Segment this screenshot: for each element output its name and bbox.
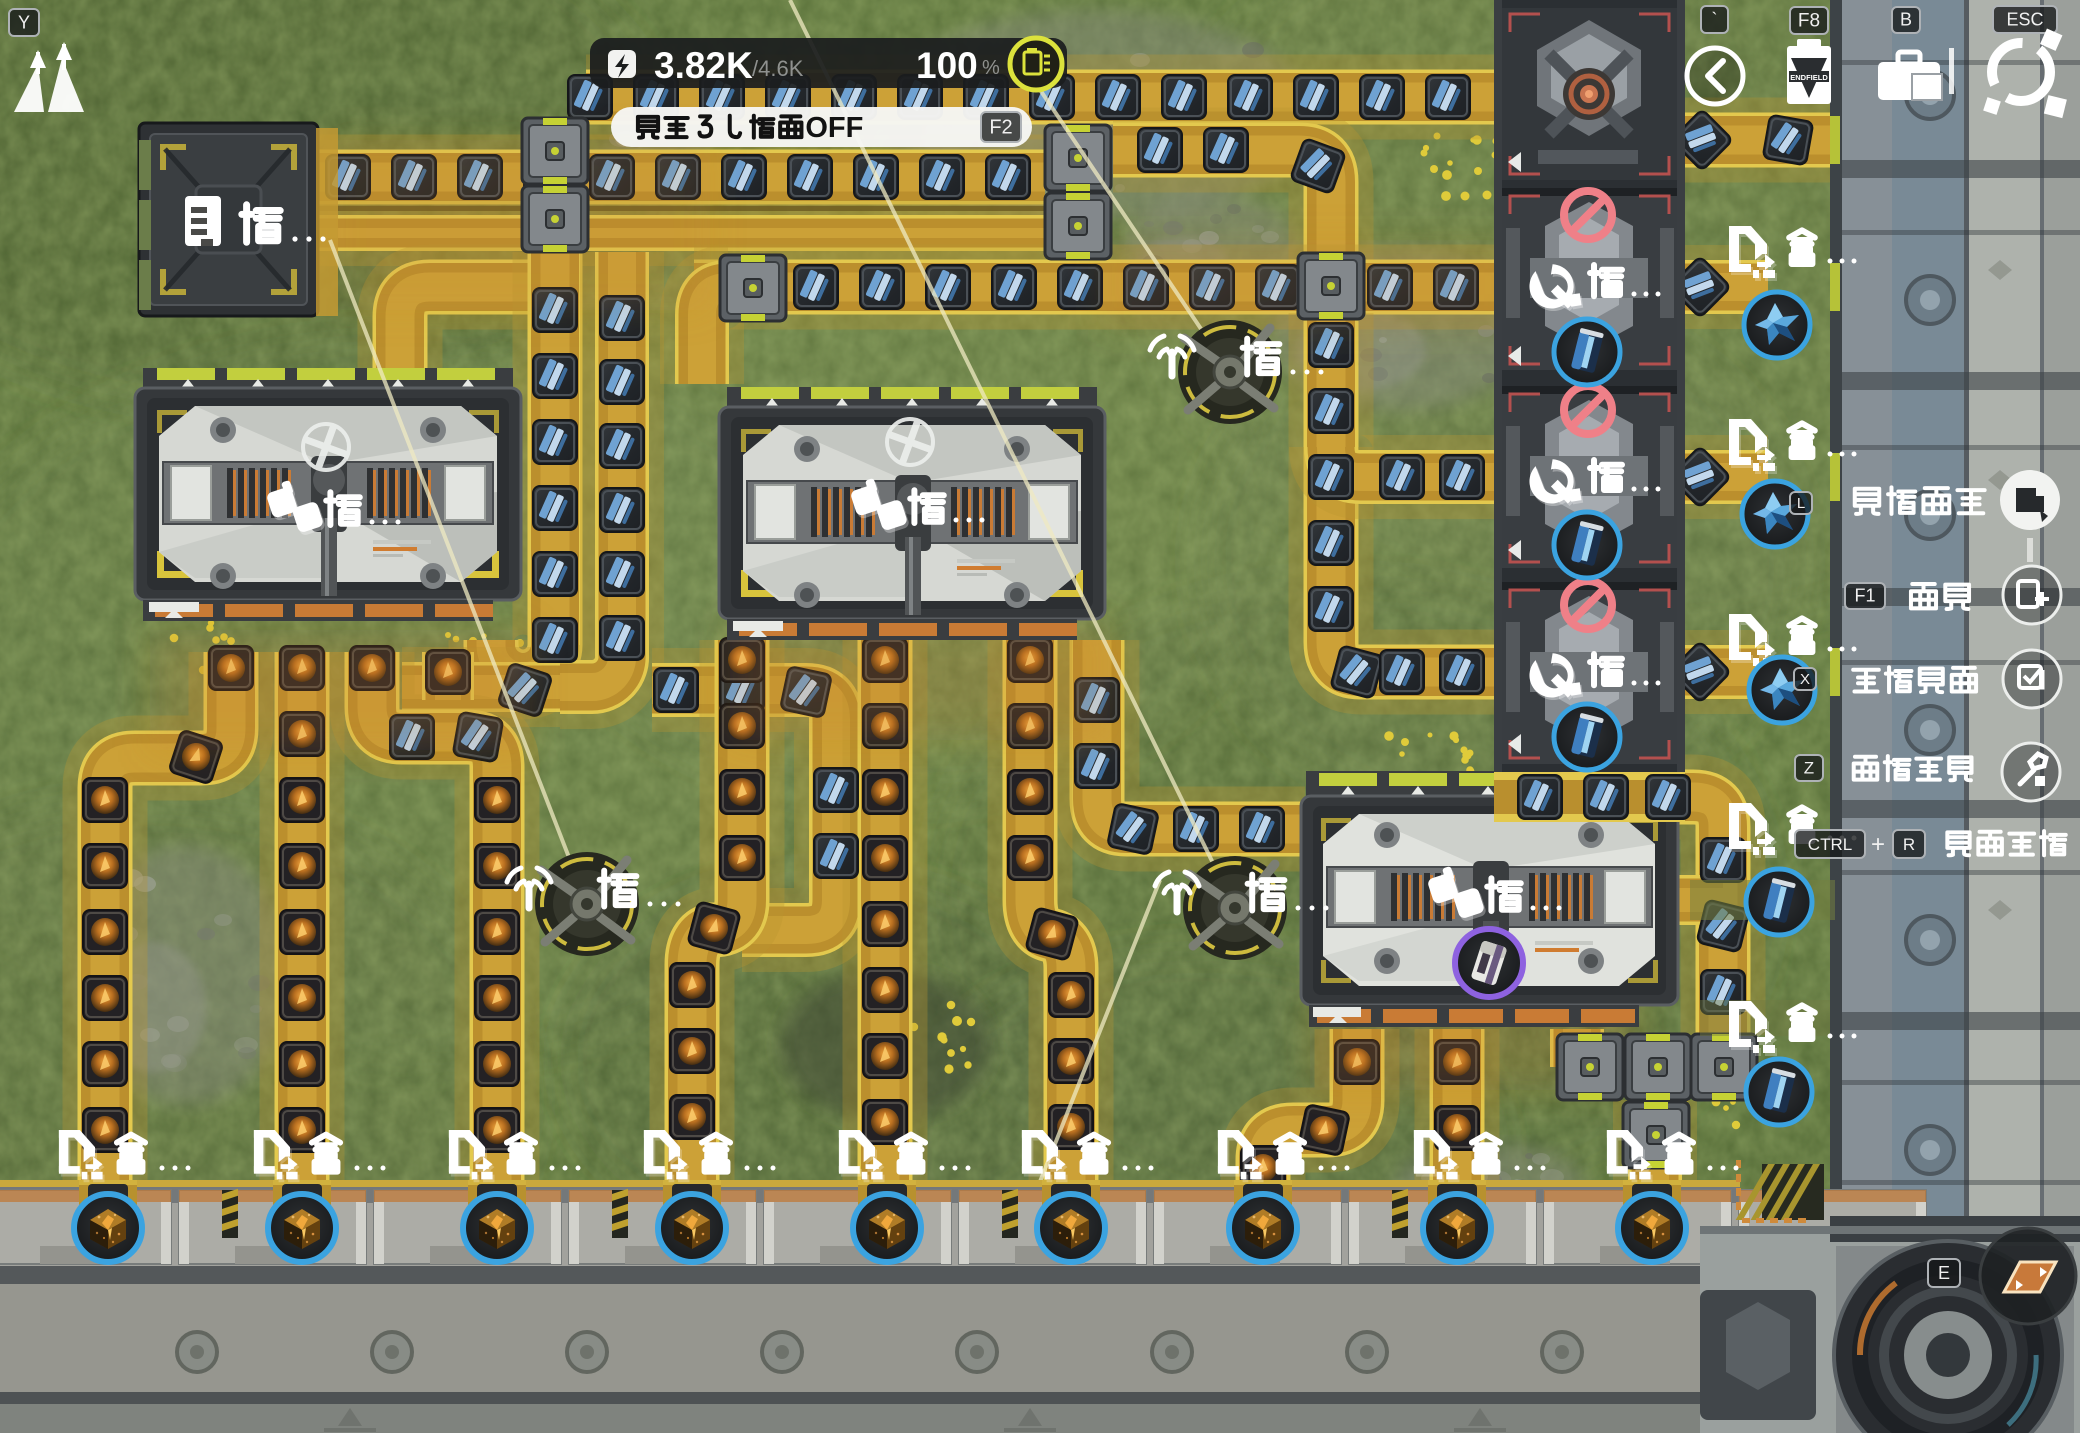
svg-text:3.82K: 3.82K bbox=[654, 45, 753, 86]
svg-text:B: B bbox=[1900, 10, 1912, 30]
svg-text:100: 100 bbox=[916, 45, 978, 86]
svg-text:/4.6K: /4.6K bbox=[752, 56, 804, 81]
svg-text:Y: Y bbox=[18, 12, 30, 32]
svg-text:`: ` bbox=[1712, 9, 1718, 29]
svg-text:OFF: OFF bbox=[805, 112, 863, 144]
svg-text:E: E bbox=[1938, 1263, 1950, 1283]
svg-text:+: + bbox=[1871, 831, 1885, 858]
svg-text:X: X bbox=[1800, 671, 1810, 688]
svg-text:F1: F1 bbox=[1854, 586, 1875, 606]
svg-text:ENDFIELD: ENDFIELD bbox=[1790, 73, 1828, 82]
svg-text:F2: F2 bbox=[989, 117, 1012, 139]
svg-text:ESC: ESC bbox=[2006, 9, 2043, 29]
svg-text:%: % bbox=[982, 57, 1000, 79]
svg-text:R: R bbox=[1903, 835, 1915, 854]
svg-text:CTRL: CTRL bbox=[1808, 835, 1852, 854]
svg-text:Z: Z bbox=[1804, 759, 1814, 778]
svg-text:L: L bbox=[1797, 495, 1805, 512]
svg-text:F8: F8 bbox=[1798, 10, 1820, 31]
